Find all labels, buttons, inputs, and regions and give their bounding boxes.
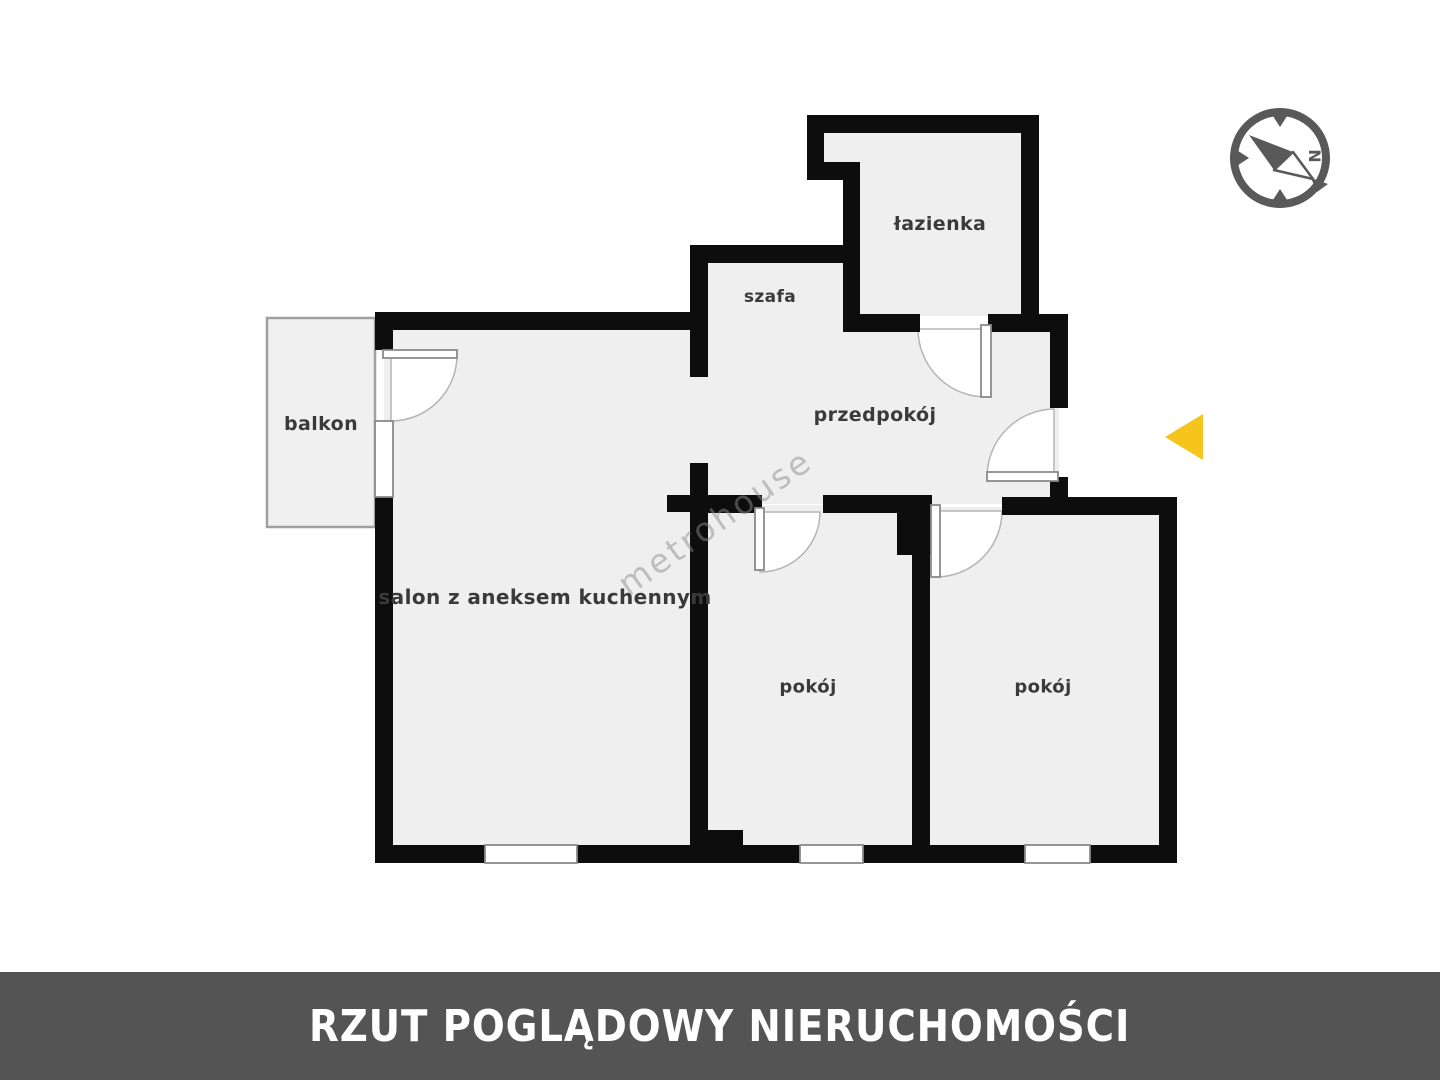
room-label-przedpokoj: przedpokój (814, 404, 937, 426)
wall (1050, 477, 1068, 515)
room-label-salon: salon z aneksem kuchennym (378, 585, 711, 609)
wall (897, 495, 932, 555)
window (800, 845, 863, 863)
compass-notch (1269, 189, 1291, 206)
wall (1021, 115, 1039, 332)
window (375, 421, 393, 497)
room2-door-leaf (931, 505, 940, 577)
room-label-pokoj-2: pokój (1014, 677, 1071, 698)
wall (375, 312, 708, 330)
compass-north-label: N (1305, 149, 1324, 162)
wall (375, 845, 485, 863)
wall (1159, 497, 1177, 863)
entrance-arrow-icon (1165, 414, 1203, 460)
bathroom-door-leaf (981, 325, 991, 397)
entrance-door-leaf (987, 472, 1058, 481)
wall (863, 845, 1025, 863)
wall (375, 312, 393, 350)
wall (807, 115, 1038, 133)
wall (690, 245, 708, 377)
compass-notch (1269, 110, 1291, 127)
footer-title: RZUT POGLĄDOWY NIERUCHOMOŚCI (309, 1001, 1130, 1052)
wall (703, 830, 743, 847)
compass-notch (1232, 147, 1249, 169)
wall (708, 845, 800, 863)
room1-door-leaf (755, 508, 764, 570)
wall (375, 497, 393, 863)
wall (1050, 314, 1068, 408)
footer-bar: RZUT POGLĄDOWY NIERUCHOMOŚCI (0, 972, 1440, 1080)
wall (577, 845, 708, 863)
room-label-lazienka: łazienka (894, 213, 987, 235)
wall (690, 245, 860, 263)
wall (912, 555, 930, 863)
room-label-balkon: balkon (284, 413, 358, 435)
room-label-pokoj-1: pokój (779, 677, 836, 698)
compass-icon: N (1232, 110, 1328, 206)
wall (667, 495, 690, 512)
room-label-szafa: szafa (744, 287, 796, 307)
window (1025, 845, 1090, 863)
balcony-door-leaf (383, 350, 457, 358)
wall (1002, 497, 1177, 515)
wall (843, 314, 920, 332)
window (485, 845, 577, 863)
wall (1090, 845, 1177, 863)
floor-plan-page: N balkon salon z aneksem kuchennym szafa… (0, 0, 1440, 1080)
